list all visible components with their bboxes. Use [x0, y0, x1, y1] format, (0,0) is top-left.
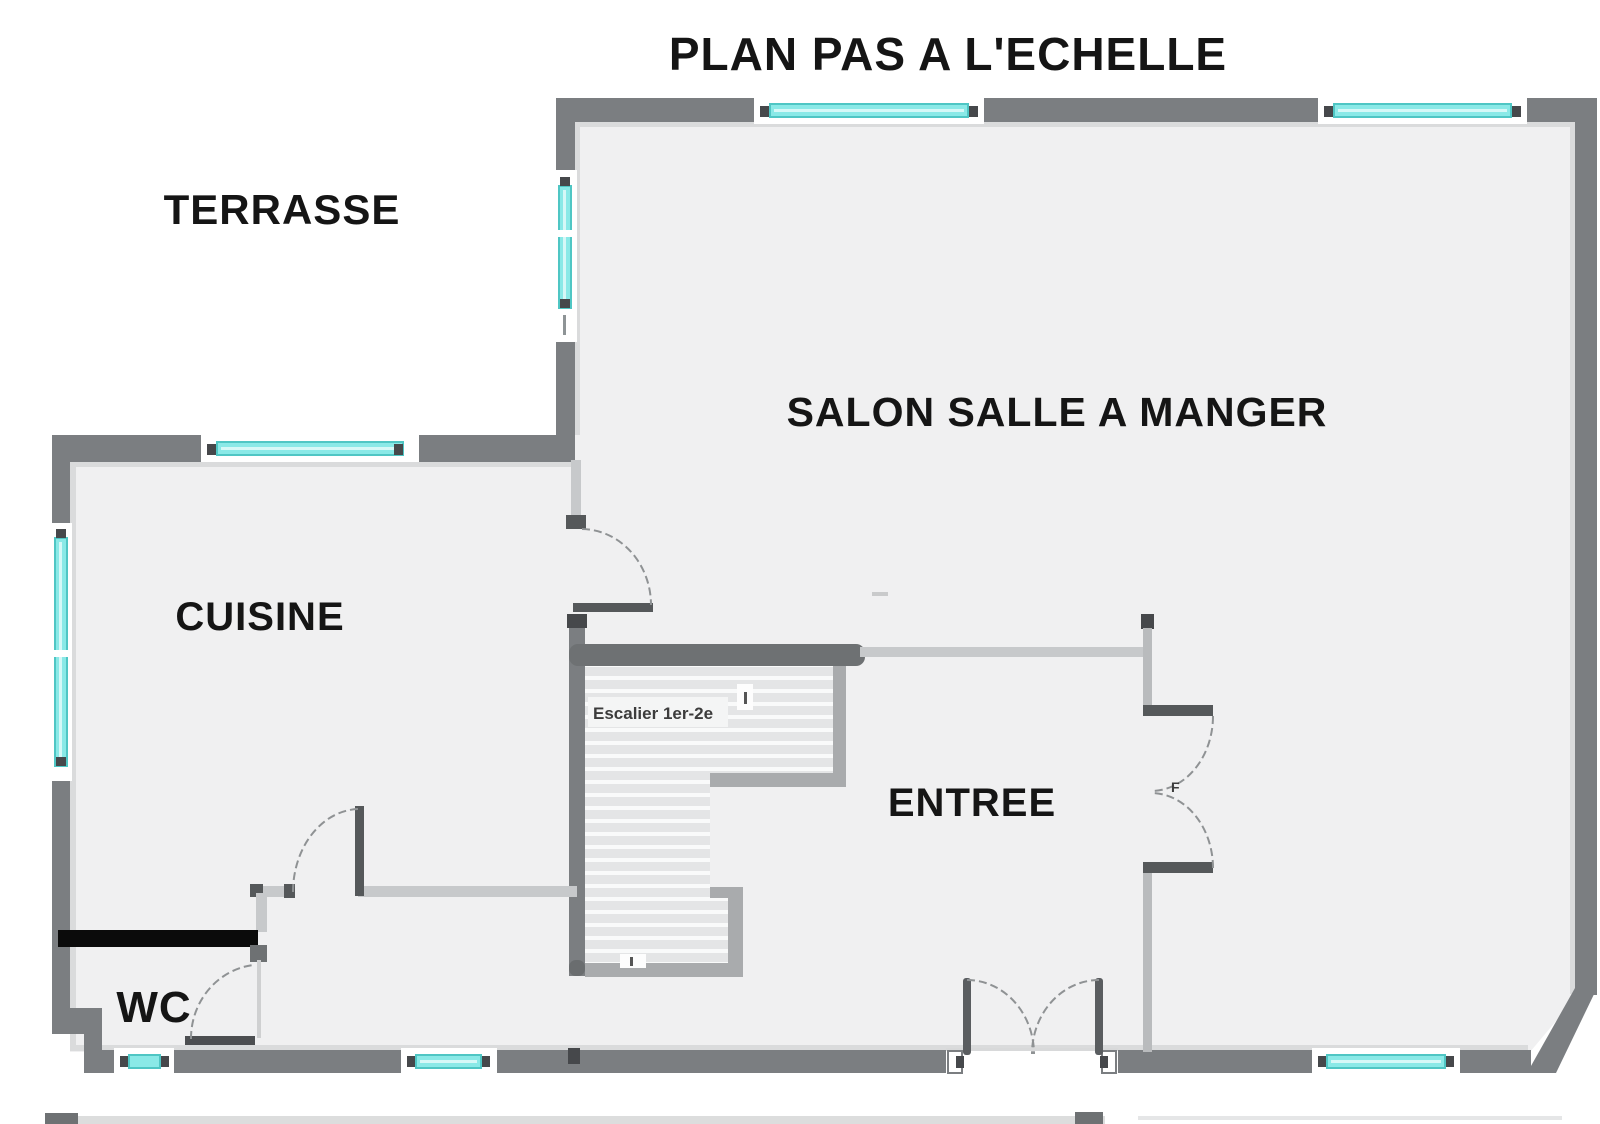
window-mullion: [556, 230, 574, 237]
window-nub: [1324, 106, 1333, 117]
door-threshold: [946, 1048, 1118, 1051]
door-leaf: [355, 806, 364, 896]
door-jamb-nub: [1100, 1056, 1108, 1068]
door-jamb-nub: [956, 1056, 964, 1068]
door-leaf: [573, 603, 653, 612]
highlighted-black-wall: [58, 930, 258, 947]
sliver-wall-block-right: [1075, 1112, 1103, 1124]
door-leaf-left: [963, 978, 971, 1055]
stair-left-wall: [569, 616, 585, 976]
salon-door-upper-wall: [571, 460, 581, 517]
page-title: PLAN PAS A L'ECHELLE: [669, 28, 1227, 80]
window-nub: [394, 444, 403, 455]
window-nub: [482, 1056, 490, 1067]
stair-flight-lower: [585, 892, 728, 963]
next-plan-sliver: [45, 1112, 1562, 1124]
salon-floor-dash: [872, 592, 888, 596]
door-jamb-bottom: [1143, 862, 1213, 873]
stair-border-right-upper: [833, 666, 846, 787]
window-nub: [207, 444, 216, 455]
window-nub: [969, 106, 978, 117]
window-nub: [1446, 1056, 1454, 1067]
floor-area: [70, 122, 1577, 1052]
window-bottom-right: [1312, 1048, 1460, 1075]
wc-north-connector-wall: [256, 893, 267, 932]
window-side-pane-line: [563, 315, 566, 335]
window-glass-highlight: [774, 109, 964, 112]
room-label-terrasse: TERRASSE: [164, 186, 401, 233]
window-nub: [1318, 1056, 1326, 1067]
french-door-label: F: [1171, 779, 1180, 795]
room-label-entree: ENTREE: [888, 781, 1056, 825]
floor-plan-drawing: PLAN PAS A L'ECHELLE TERRASSE SALON SALL…: [0, 0, 1600, 1124]
door-jamb-top: [1143, 705, 1213, 716]
stair-left-wall-foot: [569, 960, 585, 976]
window-glass-highlight: [221, 447, 399, 450]
window-nub: [56, 529, 66, 538]
interior-floor: [70, 122, 1577, 1052]
stair-left-wall-cap: [567, 614, 587, 628]
entree-right-wall-cap: [1141, 614, 1154, 629]
room-label-cuisine: CUISINE: [175, 595, 344, 639]
window-top-right: [1318, 96, 1527, 124]
window-nub: [560, 299, 570, 308]
window-glass-highlight: [1338, 109, 1507, 112]
wc-door-frame-line: [257, 960, 261, 1038]
room-label-wc: WC: [116, 983, 191, 1032]
sliver-wall-block-left: [45, 1113, 78, 1124]
stairs-label: Escalier 1er-2e: [593, 704, 713, 723]
window-bottom-mid: [401, 1048, 497, 1075]
window-glass: [129, 1055, 160, 1068]
window-nub: [407, 1056, 415, 1067]
window-cuisine-left: [50, 523, 72, 781]
window-nub: [1512, 106, 1521, 117]
stair-notch-upper-tick: [744, 692, 747, 704]
window-bottom-small: [114, 1048, 174, 1075]
door-leaf: [185, 1036, 255, 1045]
floor-plan-page: PLAN PAS A L'ECHELLE TERRASSE SALON SALL…: [0, 0, 1600, 1124]
window-nub: [56, 757, 66, 766]
window-glass-highlight: [563, 190, 566, 304]
window-glass-highlight: [420, 1060, 477, 1063]
window-top-left: [754, 96, 984, 124]
stair-border-bottom: [585, 963, 743, 977]
room-label-salon: SALON SALLE A MANGER: [787, 389, 1328, 435]
window-nub: [161, 1056, 169, 1067]
stairwell-top-wall: [569, 644, 865, 666]
door-leaf-right: [1095, 978, 1103, 1055]
entree-top-wall: [860, 647, 1150, 657]
window-nub: [120, 1056, 128, 1067]
stair-flight-middle: [585, 773, 710, 892]
window-nub: [760, 106, 769, 117]
entree-right-wall-lower: [1143, 872, 1152, 1052]
window-glass-highlight: [1331, 1060, 1441, 1063]
bottom-wall-stair-nub: [568, 1048, 580, 1064]
sliver-wall-band: [75, 1116, 1105, 1124]
window-terrasse-wall: [554, 170, 577, 342]
hall-wall-right-segment: [358, 886, 577, 897]
wall-right: [1575, 98, 1597, 995]
stair-border-mid-horizontal: [710, 773, 846, 787]
wall-left-notch-connector: [84, 1030, 102, 1052]
window-mullion: [52, 650, 70, 657]
window-cuisine-top: [201, 434, 419, 462]
entree-right-wall-upper: [1143, 628, 1152, 710]
window-nub: [560, 177, 570, 186]
shadow-cuisine-top: [75, 462, 573, 467]
wc-right-wall-cap: [250, 945, 267, 962]
stair-notch-lower-tick: [630, 957, 633, 966]
sliver-thin-line: [1138, 1116, 1562, 1120]
salon-door-top-cap: [566, 515, 586, 529]
